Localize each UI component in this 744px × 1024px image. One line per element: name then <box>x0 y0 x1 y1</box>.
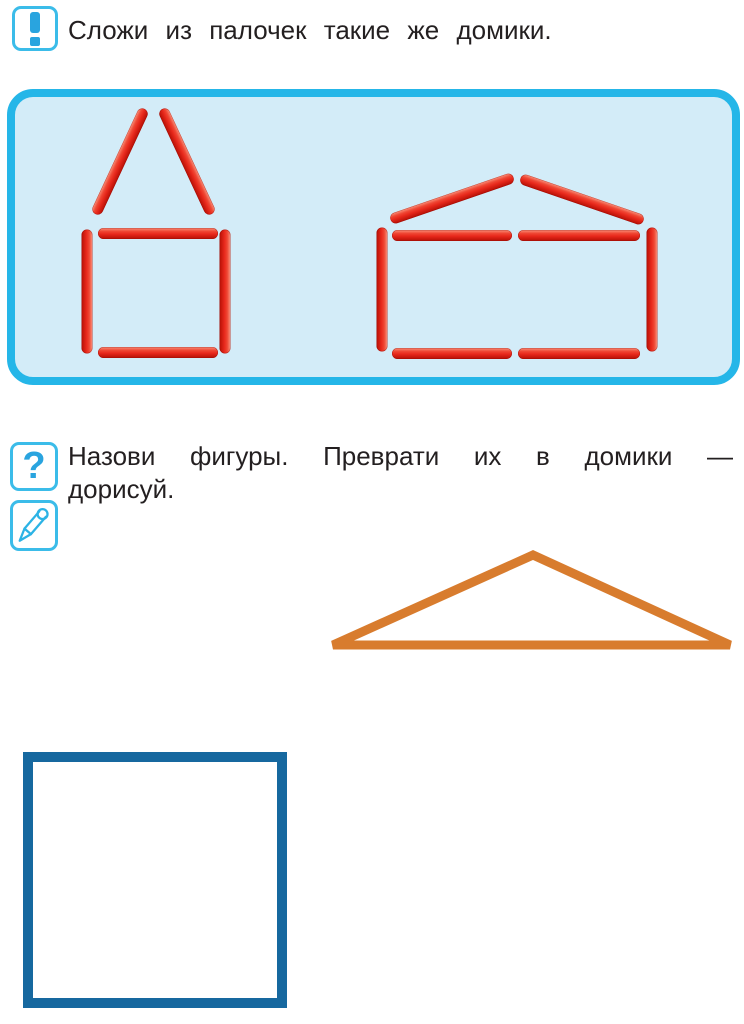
roof-triangle-outline <box>325 545 740 660</box>
pencil-icon <box>10 500 58 551</box>
exclamation-icon <box>12 6 58 51</box>
pencil-icon-drawing <box>14 504 54 547</box>
task2-line1: Назови фигуры. Преврати их в домики — <box>68 440 733 473</box>
house-square-outline <box>23 752 287 1008</box>
matchstick-panel <box>7 89 740 385</box>
question-glyph: ? <box>22 447 45 485</box>
exclamation-dot <box>30 37 40 46</box>
worksheet-page: Сложи из палочек такие же домики. ? Назо… <box>0 0 744 1024</box>
task1-instruction: Сложи из палочек такие же домики. <box>68 13 688 47</box>
question-icon: ? <box>10 442 58 491</box>
exclamation-bar <box>30 12 40 33</box>
task2-instruction: Назови фигуры. Преврати их в домики — до… <box>68 440 733 506</box>
triangle-shape <box>333 555 730 645</box>
task2-line2: дорисуй. <box>68 473 733 506</box>
